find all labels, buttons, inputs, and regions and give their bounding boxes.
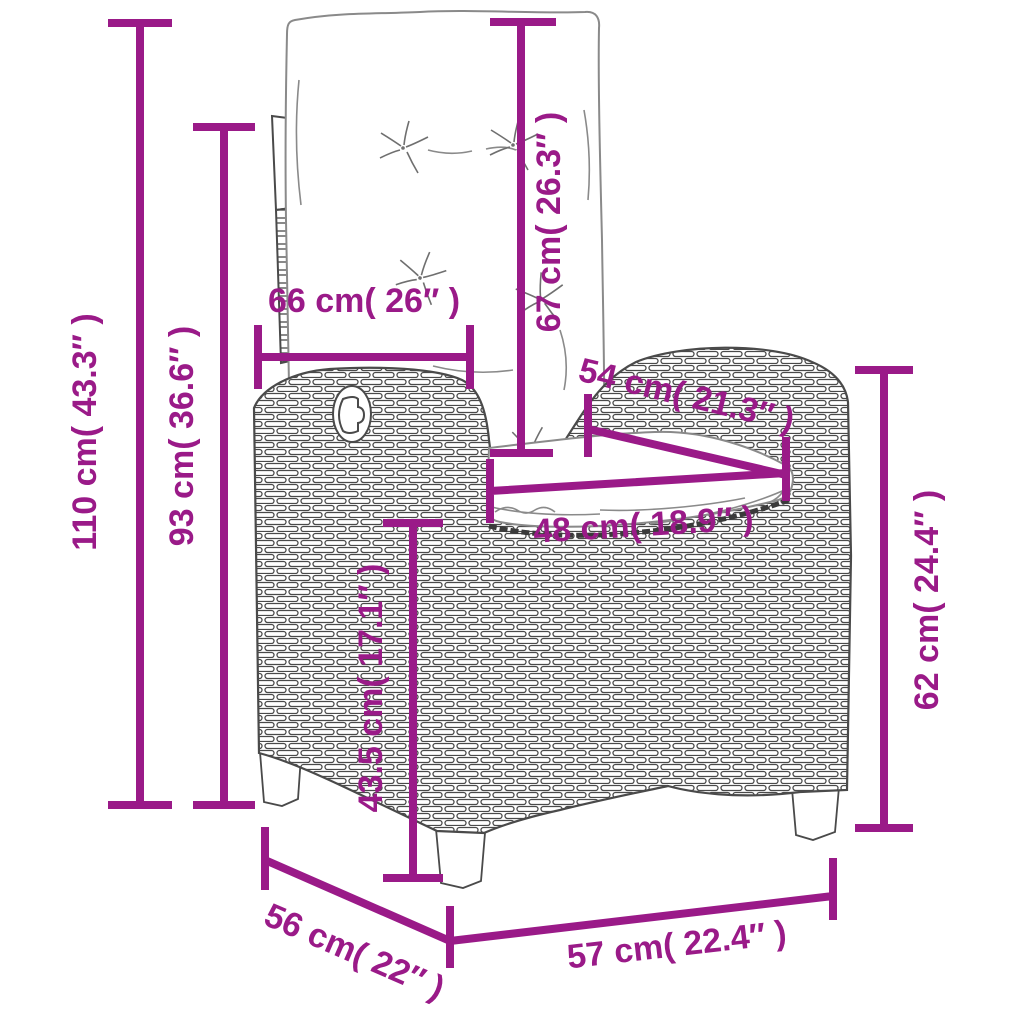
dimension-label: 66 cm( 26″ ) <box>268 282 460 320</box>
dimension-line <box>193 127 255 805</box>
chair-dimension-diagram: 110 cm( 43.3″ ) 93 cm( 36.6″ ) 66 cm( 26… <box>0 0 1024 1024</box>
dimension-label: 67 cm( 26.3″ ) <box>530 112 568 332</box>
dimension-label: 43.5 cm( 17.1″ ) <box>352 564 390 813</box>
dimension-label: 62 cm( 24.4″ ) <box>908 490 946 710</box>
dimension-base-depth: 56 cm( 22″ ) <box>259 827 450 1008</box>
dimension-armrest-height: 62 cm( 24.4″ ) <box>855 370 946 828</box>
dimension-base-width: 57 cm( 22.4″ ) <box>450 858 833 976</box>
dimension-line <box>855 370 913 828</box>
dimension-overall-height: 110 cm( 43.3″ ) <box>66 23 172 805</box>
dimension-label: 93 cm( 36.6″ ) <box>163 326 201 546</box>
dimension-label: 56 cm( 22″ ) <box>259 896 450 1007</box>
dimension-label: 110 cm( 43.3″ ) <box>66 313 104 550</box>
dimension-back-height: 93 cm( 36.6″ ) <box>163 127 255 805</box>
leg-center <box>436 829 485 888</box>
leg-right <box>792 787 839 840</box>
